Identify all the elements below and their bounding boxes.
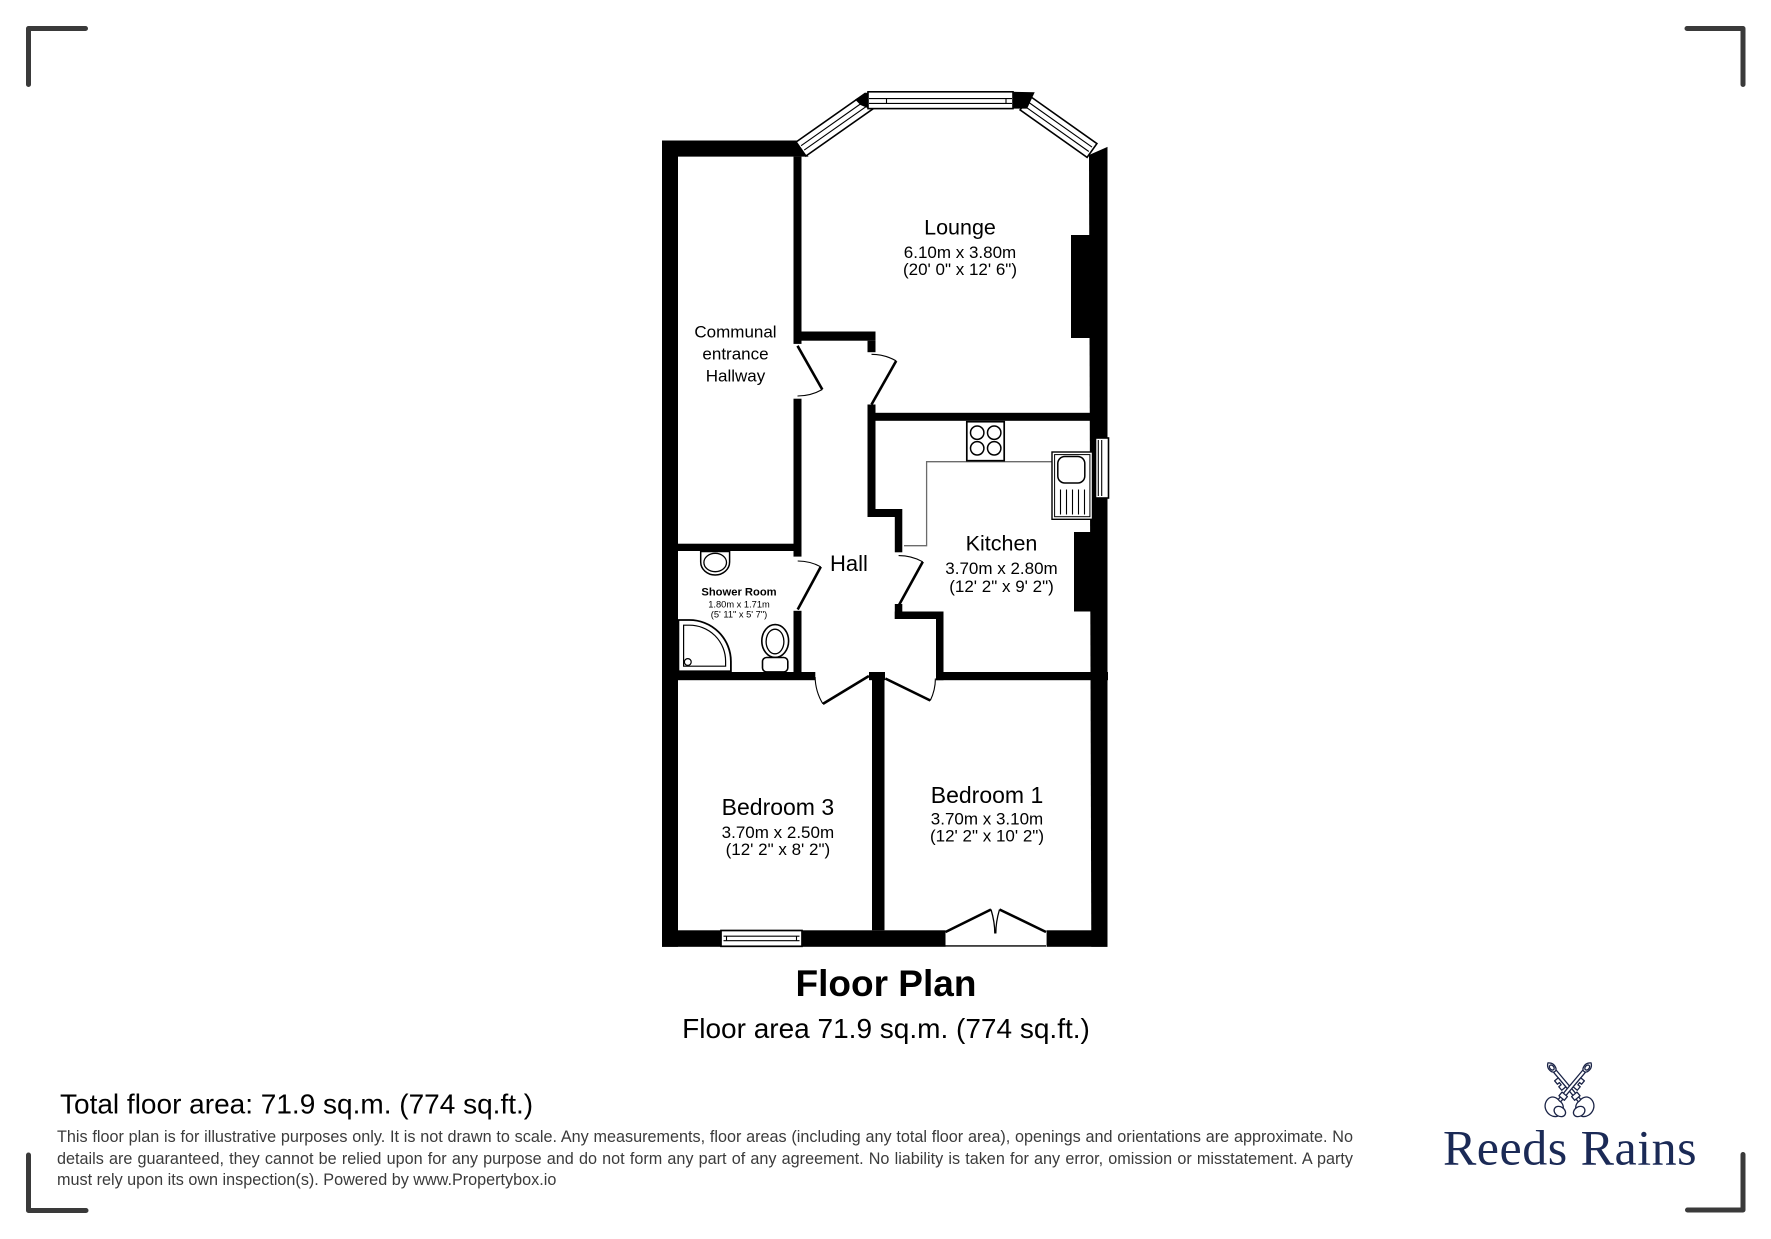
- svg-text:(20' 0" x 12' 6"): (20' 0" x 12' 6"): [903, 260, 1017, 279]
- svg-text:(5' 11" x 5' 7"): (5' 11" x 5' 7"): [711, 610, 768, 620]
- svg-text:Kitchen: Kitchen: [966, 532, 1038, 556]
- svg-text:Shower Room: Shower Room: [701, 586, 776, 598]
- svg-text:Bedroom 3: Bedroom 3: [722, 794, 835, 820]
- svg-text:Bedroom 1: Bedroom 1: [931, 782, 1044, 808]
- svg-text:Hallway: Hallway: [706, 367, 766, 386]
- svg-text:Reeds Rains: Reeds Rains: [1443, 1120, 1697, 1176]
- svg-text:(12' 2" x 8' 2"): (12' 2" x 8' 2"): [726, 840, 831, 859]
- svg-text:Floor Plan: Floor Plan: [796, 963, 977, 1004]
- svg-text:Hall: Hall: [830, 551, 868, 576]
- svg-text:Communal: Communal: [694, 323, 776, 342]
- svg-text:1.80m x 1.71m: 1.80m x 1.71m: [708, 599, 770, 609]
- svg-text:3.70m x 2.80m: 3.70m x 2.80m: [945, 559, 1057, 578]
- svg-text:(12' 2" x 9' 2"): (12' 2" x 9' 2"): [949, 577, 1054, 596]
- svg-text:Lounge: Lounge: [924, 216, 996, 240]
- svg-text:(12' 2" x 10' 2"): (12' 2" x 10' 2"): [930, 827, 1044, 846]
- svg-text:Total floor area: 71.9 sq.m. (: Total floor area: 71.9 sq.m. (774 sq.ft.…: [60, 1088, 533, 1119]
- svg-text:Floor area 71.9 sq.m. (774 sq.: Floor area 71.9 sq.m. (774 sq.ft.): [682, 1013, 1090, 1044]
- svg-text:entrance: entrance: [702, 345, 768, 364]
